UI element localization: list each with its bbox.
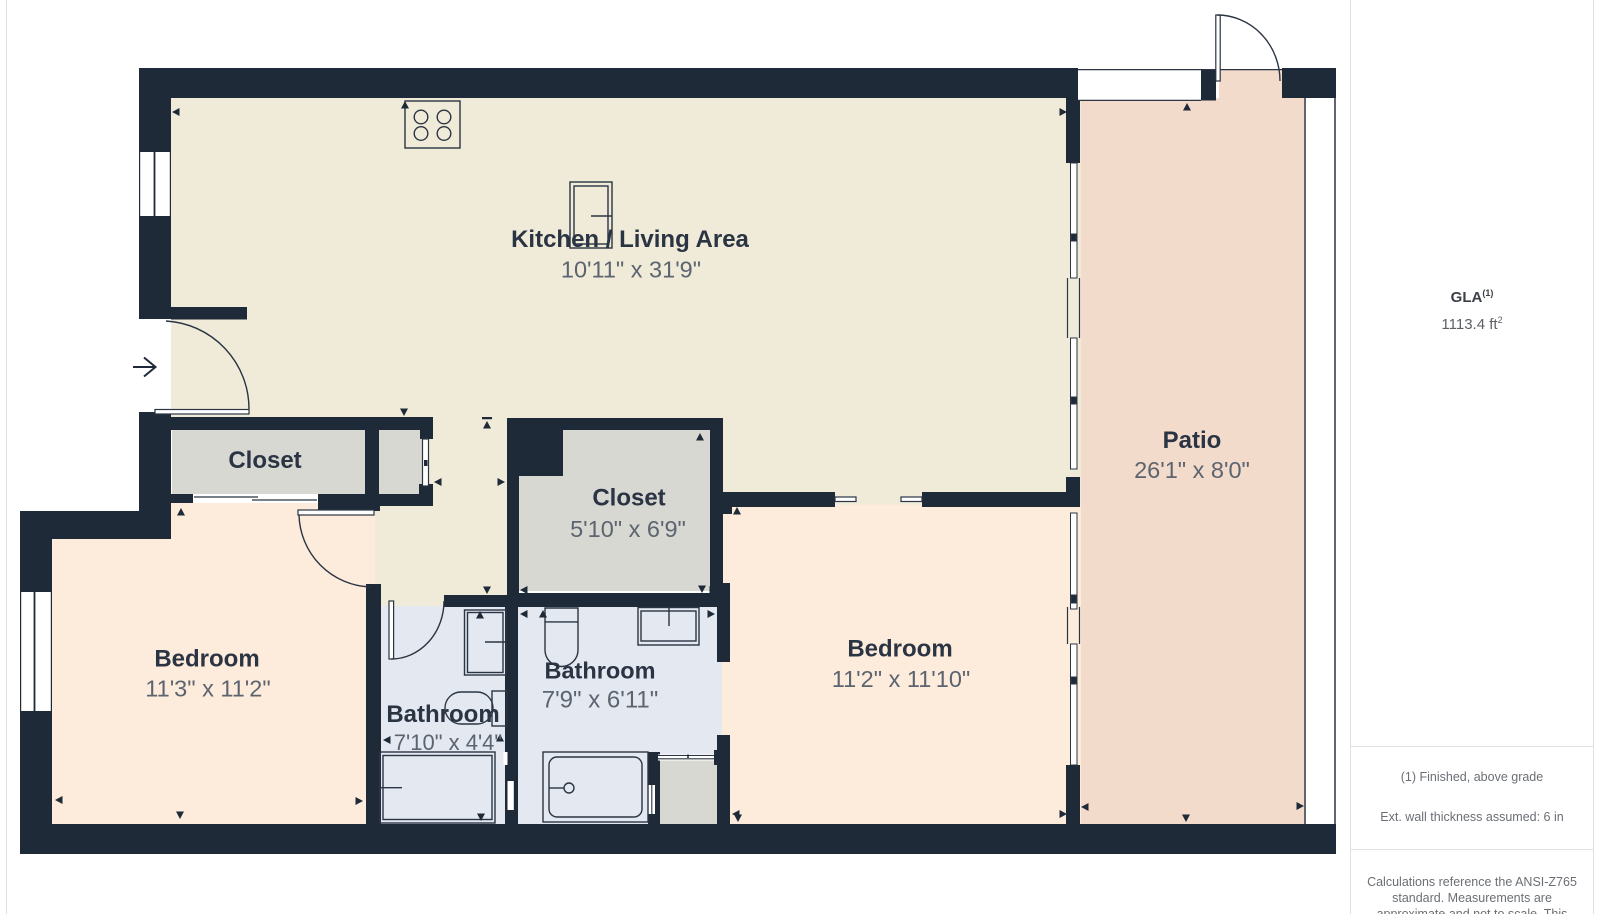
svg-text:7'10" x 4'4": 7'10" x 4'4" <box>394 730 502 755</box>
svg-text:Bathroom: Bathroom <box>545 658 656 684</box>
svg-text:Bedroom: Bedroom <box>154 646 259 673</box>
svg-text:Closet: Closet <box>592 485 665 512</box>
svg-text:10'11" x 31'9": 10'11" x 31'9" <box>561 257 701 283</box>
svg-text:Bathroom: Bathroom <box>386 701 499 728</box>
svg-text:26'1" x 8'0": 26'1" x 8'0" <box>1134 457 1250 483</box>
svg-text:Bedroom: Bedroom <box>847 636 952 663</box>
svg-text:7'9" x 6'11": 7'9" x 6'11" <box>542 687 659 714</box>
svg-text:Closet: Closet <box>228 447 301 474</box>
svg-text:11'3" x 11'2": 11'3" x 11'2" <box>145 676 270 702</box>
svg-text:5'10" x 6'9": 5'10" x 6'9" <box>570 516 686 542</box>
svg-text:11'2" x 11'10": 11'2" x 11'10" <box>832 666 970 692</box>
svg-text:Patio: Patio <box>1163 427 1222 454</box>
svg-text:Kitchen / Living Area: Kitchen / Living Area <box>511 226 749 253</box>
